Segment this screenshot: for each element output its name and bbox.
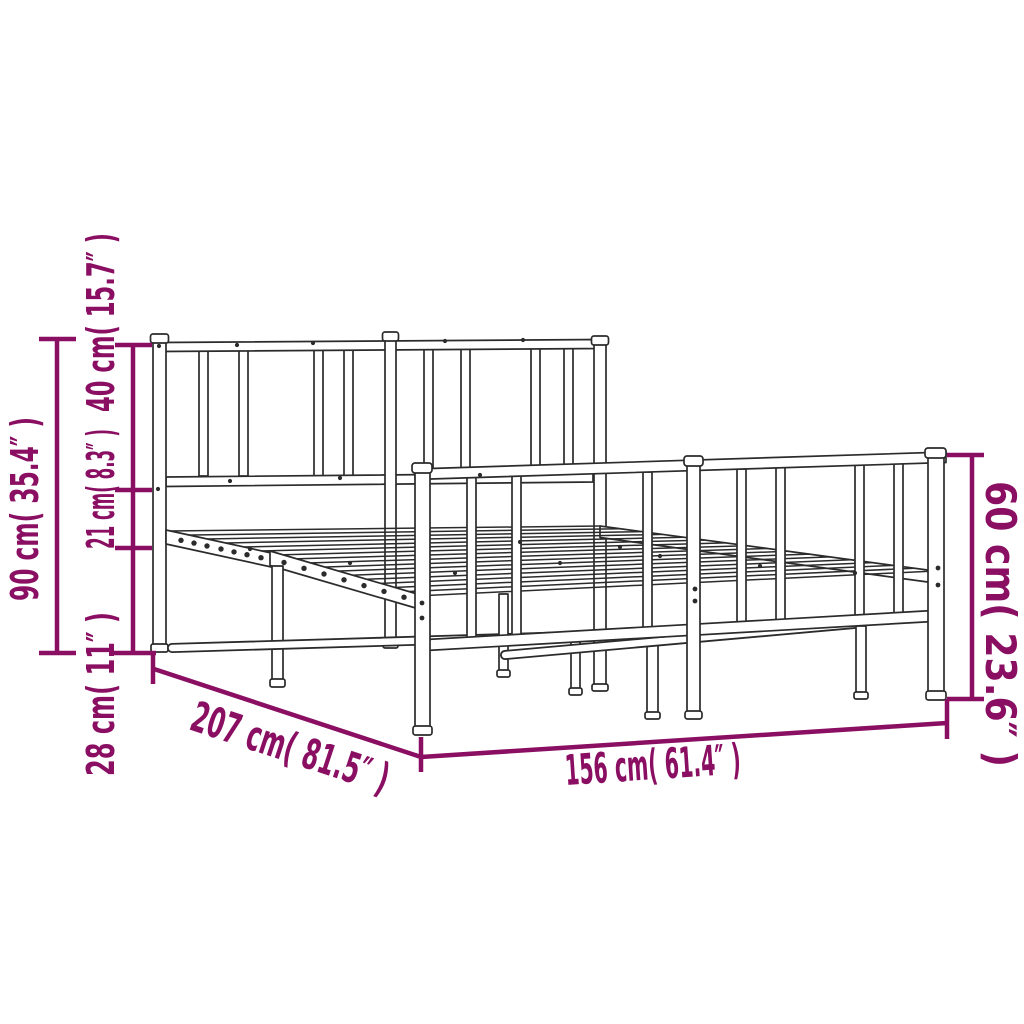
footboard-top-rail: [415, 452, 946, 480]
center-foot: [569, 688, 582, 695]
footboard-mid-foot: [685, 711, 702, 719]
footboard-right-foot: [926, 691, 946, 700]
center-leg: [499, 594, 508, 674]
headboard-slat: [344, 350, 353, 476]
footboard-mid-post-cap: [684, 456, 703, 466]
headboard-slat: [239, 350, 248, 476]
footboard-bar: [737, 469, 746, 626]
product-dimension-diagram: 90 cm( 35.4″ ) 40 cm( 15.7″ ) 21 cm( 8.3…: [0, 0, 1024, 1024]
footboard-left-post: [415, 472, 430, 728]
headboard-slat: [199, 350, 208, 476]
center-foot: [645, 712, 660, 719]
label-headboard-section: 40 cm( 15.7″ ): [79, 233, 123, 412]
side-rail-center-foot: [270, 679, 285, 687]
headboard-slat: [424, 349, 433, 474]
headboard-left-post: [153, 341, 166, 651]
footboard-bar: [512, 476, 521, 639]
footboard-left-foot: [413, 726, 432, 735]
bed-frame-diagram: 90 cm( 35.4″ ) 40 cm( 15.7″ ) 21 cm( 8.3…: [0, 0, 1024, 1024]
center-leg: [856, 626, 866, 696]
footboard-left-post-cap: [412, 463, 432, 473]
footboard-bar: [855, 465, 864, 619]
headboard-slat: [461, 349, 470, 474]
headboard-mid-post-cap: [383, 332, 399, 341]
label-length: 207 cm( 81.5″ ): [185, 692, 396, 803]
headboard-top-rail: [160, 340, 600, 352]
footboard-bar: [467, 477, 476, 641]
slat-deck: [166, 526, 935, 687]
label-base-height: 28 cm( 11″ ): [79, 612, 123, 776]
center-foot: [497, 670, 510, 677]
headboard-left-post-cap: [151, 334, 169, 343]
label-under-headboard: 21 cm( 8.3″ ): [79, 429, 123, 549]
label-width: 156 cm( 61.4″ ): [563, 734, 742, 795]
center-foot: [854, 692, 868, 699]
headboard-slat: [314, 350, 323, 476]
label-footboard-height: 60 cm( 23.6″ ): [976, 481, 1024, 767]
bed-frame: [151, 332, 947, 735]
headboard-slat: [531, 349, 540, 474]
side-rail-center-leg: [272, 566, 283, 681]
center-leg: [647, 636, 658, 716]
footboard-bar: [776, 467, 785, 623]
headboard-slat: [564, 348, 573, 473]
label-total-height: 90 cm( 35.4″ ): [3, 417, 47, 601]
footboard-right-post: [928, 457, 944, 693]
headboard-right-foot: [592, 684, 608, 691]
footboard-bar: [643, 472, 652, 631]
footboard-right-post-cap: [925, 448, 946, 458]
footboard-bar: [894, 463, 903, 616]
headboard-right-post-cap: [592, 336, 609, 345]
